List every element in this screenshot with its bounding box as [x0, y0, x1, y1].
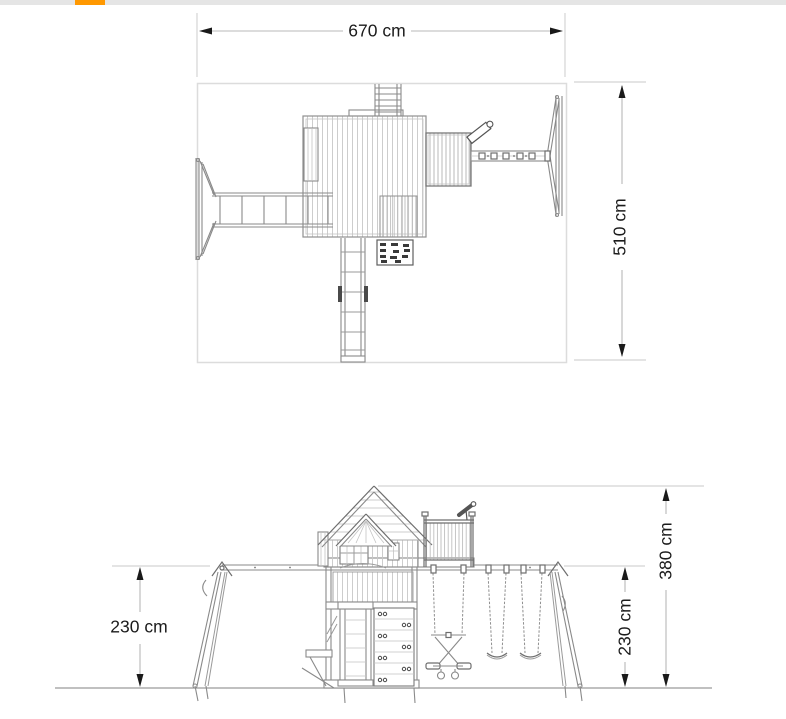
plan-lower-platform: [380, 196, 417, 237]
side-swing-2: [520, 573, 542, 659]
side-left-height-label: 230 cm: [110, 618, 167, 636]
side-swing-1: [487, 573, 507, 659]
side-left-aframe: [193, 562, 232, 701]
arrow-up-icon: [622, 567, 629, 580]
plan-telescope-icon: [467, 119, 495, 143]
plan-left-aframe: [196, 158, 216, 260]
arrow-left-icon: [199, 28, 212, 35]
arrow-down-icon: [619, 344, 626, 357]
arrow-down-icon: [137, 674, 144, 687]
arrow-up-icon: [619, 85, 626, 98]
side-glider-swing: [426, 573, 471, 679]
arrow-down-icon: [622, 674, 629, 687]
side-slide: [338, 602, 373, 686]
arrow-up-icon: [137, 567, 144, 580]
plan-rock-wall: [377, 240, 413, 265]
plan-depth-label: 510 cm: [611, 198, 629, 255]
arrow-right-icon: [550, 28, 563, 35]
side-view-drawing: [55, 486, 712, 703]
arrow-up-icon: [663, 488, 670, 501]
plan-swing-beam: [471, 151, 547, 161]
side-railing-platform: [422, 512, 475, 567]
plan-balcony: [304, 128, 318, 181]
side-swing-height-label: 230 cm: [616, 598, 634, 655]
side-total-height-label: 380 cm: [657, 522, 675, 579]
plan-right-aframe: [545, 96, 562, 217]
arrow-down-icon: [663, 674, 670, 687]
side-roof: [318, 486, 432, 547]
side-rock-wall: [374, 608, 414, 686]
plan-view-drawing: [196, 84, 567, 363]
playset-dimension-drawing-page: 670 cm 510 cm 230 cm 230 cm 380 cm: [0, 0, 786, 719]
side-right-aframe: [548, 562, 582, 701]
technical-drawing-svg: [0, 0, 786, 719]
plan-platform: [426, 133, 471, 186]
plan-slide: [338, 238, 368, 362]
plan-width-label: 670 cm: [348, 22, 405, 40]
